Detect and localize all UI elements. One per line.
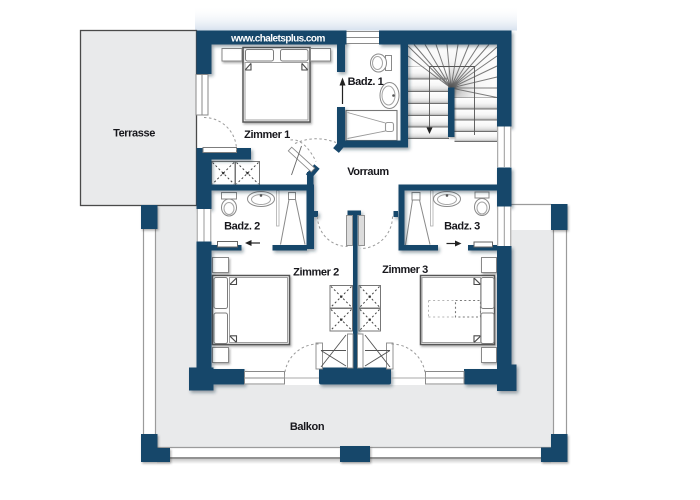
svg-text:Balkon: Balkon — [290, 421, 325, 433]
svg-text:Badz. 1: Badz. 1 — [348, 76, 384, 88]
svg-text:Vorraum: Vorraum — [347, 166, 389, 178]
svg-text:Terrasse: Terrasse — [113, 128, 155, 140]
svg-text:www.chaletsplus.com: www.chaletsplus.com — [230, 34, 325, 45]
svg-text:Badz. 3: Badz. 3 — [444, 221, 480, 233]
svg-text:Zimmer 1: Zimmer 1 — [244, 129, 290, 141]
svg-text:Badz. 2: Badz. 2 — [224, 221, 260, 233]
svg-text:Zimmer 3: Zimmer 3 — [382, 264, 428, 276]
svg-text:Zimmer 2: Zimmer 2 — [293, 267, 339, 279]
